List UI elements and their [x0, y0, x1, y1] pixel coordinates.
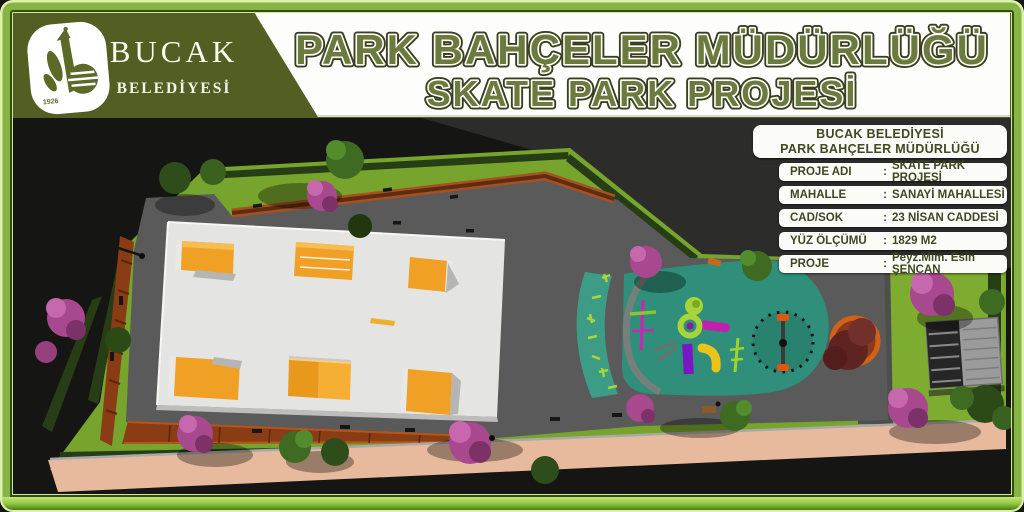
carousel-circle	[753, 312, 813, 372]
info-label: MAHALLE	[779, 189, 878, 201]
info-row-area: YÜZ ÖLÇÜMÜ : 1829 M2	[779, 232, 1007, 250]
info-label: PROJE ADI	[779, 166, 878, 178]
info-value: 1829 M2	[892, 235, 1007, 247]
project-info-panel: BUCAK BELEDİYESİ PARK BAHÇELER MÜDÜRLÜĞÜ…	[753, 125, 1007, 273]
info-value: SANAYİ MAHALLESİ	[892, 189, 1007, 201]
ramp-grind-box	[294, 242, 354, 280]
ramp-fun-box	[288, 356, 351, 400]
info-value: 23 NİSAN CADDESİ	[892, 212, 1007, 224]
info-separator: :	[878, 258, 892, 270]
park-bench	[702, 406, 716, 413]
info-value: SKATE PARK PROJESİ	[892, 160, 1007, 184]
info-separator: :	[878, 166, 892, 178]
info-header-line2: PARK BAHÇELER MÜDÜRLÜĞÜ	[753, 142, 1007, 157]
title-line2: SKATE PARK PROJESİ	[427, 73, 858, 114]
info-separator: :	[878, 189, 892, 201]
info-row-project-name: PROJE ADI : SKATE PARK PROJESİ	[779, 163, 1007, 181]
info-label: YÜZ ÖLÇÜMÜ	[779, 235, 878, 247]
info-value: Peyz.Mim. Esin ŞENCAN	[892, 252, 1007, 276]
info-header-line1: BUCAK BELEDİYESİ	[753, 127, 1007, 142]
info-label: CAD/SOK	[779, 212, 878, 224]
board-title: PARK BAHÇELER MÜDÜRLÜĞÜ PARK BAHÇELER MÜ…	[0, 0, 1024, 122]
info-label: PROJE	[779, 258, 878, 270]
info-row-street: CAD/SOK : 23 NİSAN CADDESİ	[779, 209, 1007, 227]
info-separator: :	[878, 212, 892, 224]
info-row-designer: PROJE : Peyz.Mim. Esin ŞENCAN	[779, 255, 1007, 273]
info-row-neighborhood: MAHALLE : SANAYİ MAHALLESİ	[779, 186, 1007, 204]
ramp-quarter-pipe-2	[408, 257, 459, 293]
info-separator: :	[878, 235, 892, 247]
presentation-board: 1926 BUCAK BELEDİYESİ PARK BAHÇELER MÜDÜ…	[0, 0, 1024, 512]
ramp-quarter-pipe-4	[401, 368, 461, 415]
info-panel-header: BUCAK BELEDİYESİ PARK BAHÇELER MÜDÜRLÜĞÜ	[753, 125, 1007, 158]
ramp-quarter-pipe-3	[168, 356, 242, 400]
info-rows: PROJE ADI : SKATE PARK PROJESİ MAHALLE :…	[779, 163, 1007, 273]
title-line1: PARK BAHÇELER MÜDÜRLÜĞÜ	[295, 26, 989, 73]
